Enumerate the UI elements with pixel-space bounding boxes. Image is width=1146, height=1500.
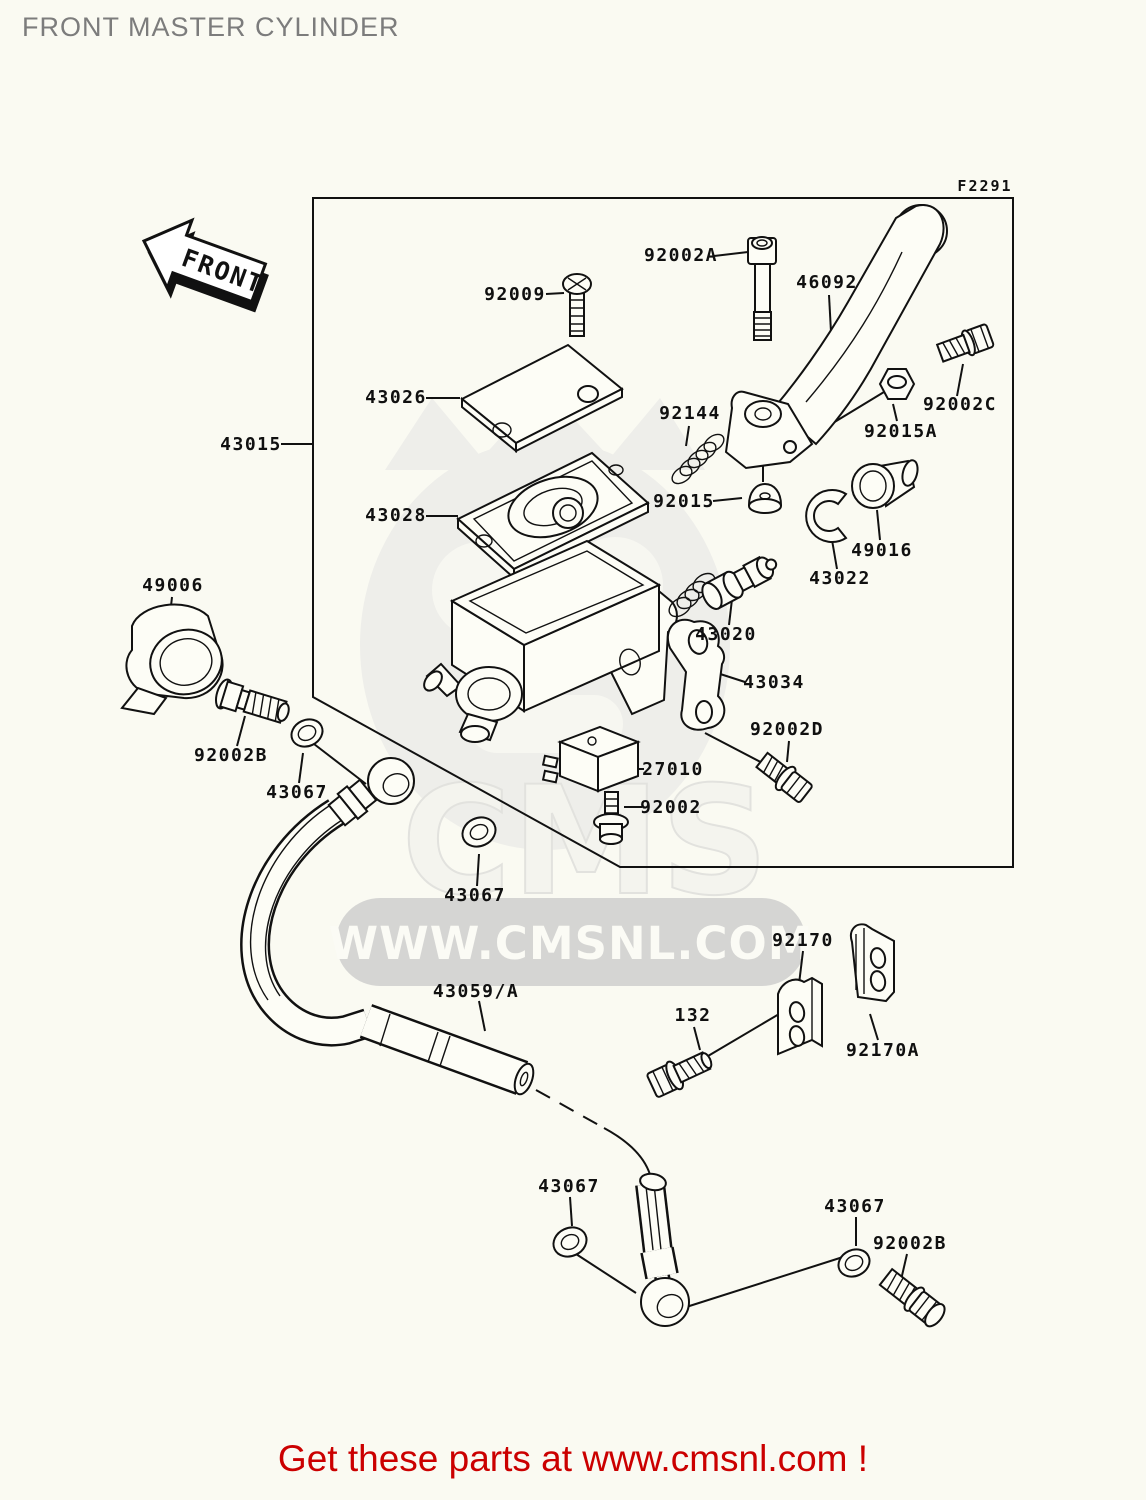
part-label-43067-b[interactable]: 43067	[444, 885, 506, 906]
part-drawing-92170a	[851, 924, 894, 1001]
leader-92002c	[957, 364, 963, 396]
part-drawing-43067-d	[834, 1244, 874, 1281]
figure-code: F2291	[957, 177, 1012, 195]
front-arrow-icon: FRONT	[129, 207, 278, 327]
assembly-43067-c	[576, 1254, 636, 1293]
part-drawing-49016	[852, 459, 920, 508]
assembly-43067-d	[680, 1257, 843, 1309]
leader-92015	[713, 498, 742, 501]
hose-continuation-dashed	[536, 1090, 604, 1128]
parts-diagram: CMS WWW.CMSNL.COM F2291 FRONT	[0, 0, 1146, 1500]
leader-43067-c	[570, 1197, 572, 1226]
part-label-92002b[interactable]: 92002B	[194, 745, 268, 766]
part-label-92009[interactable]: 92009	[484, 284, 546, 305]
part-label-92002[interactable]: 92002	[640, 797, 702, 818]
part-label-43034[interactable]: 43034	[743, 672, 805, 693]
part-label-43059a[interactable]: 43059/A	[433, 981, 519, 1002]
part-drawing-92002a	[748, 237, 776, 340]
part-label-49006[interactable]: 49006	[142, 575, 204, 596]
part-label-92015[interactable]: 92015	[653, 491, 715, 512]
part-drawing-92170	[778, 978, 822, 1054]
part-drawing-92002b-b	[877, 1266, 949, 1331]
assembly-43067-a	[314, 744, 366, 784]
leader-43059	[479, 1001, 485, 1031]
leader-46092	[829, 295, 831, 332]
part-label-92170[interactable]: 92170	[772, 930, 834, 951]
part-drawing-43067-a	[287, 714, 327, 751]
part-drawing-43067-c	[549, 1222, 592, 1262]
leader-43022	[832, 540, 837, 569]
cmsnl-url-watermark-text: WWW.CMSNL.COM	[328, 917, 813, 970]
part-label-43015[interactable]: 43015	[220, 434, 282, 455]
parts-catalog-page: FRONT MASTER CYLINDER CMS WWW.CMSNL.COM …	[0, 0, 1146, 1500]
part-label-92002c[interactable]: 92002C	[923, 394, 997, 415]
part-drawing-43026	[462, 345, 622, 451]
leader-92009	[546, 293, 564, 294]
part-label-92002b-b[interactable]: 92002B	[873, 1233, 947, 1254]
leader-132	[694, 1027, 700, 1050]
part-drawing-49006	[122, 605, 229, 714]
part-drawing-132	[646, 1045, 717, 1099]
part-label-46092[interactable]: 46092	[796, 272, 858, 293]
part-label-43020[interactable]: 43020	[695, 624, 757, 645]
leader-92002a	[714, 252, 748, 256]
part-label-92015a[interactable]: 92015A	[864, 421, 938, 442]
part-drawing-92009	[563, 274, 591, 336]
part-label-43022[interactable]: 43022	[809, 568, 871, 589]
part-label-43067-c[interactable]: 43067	[538, 1176, 600, 1197]
part-label-43067-d[interactable]: 43067	[824, 1196, 886, 1217]
cmsnl-url-watermark: WWW.CMSNL.COM	[328, 898, 813, 986]
part-label-92002d[interactable]: 92002D	[750, 719, 824, 740]
part-drawing-92015a	[880, 369, 914, 399]
part-label-27010[interactable]: 27010	[642, 759, 704, 780]
part-label-132[interactable]: 132	[674, 1005, 711, 1026]
part-drawing-92002c	[936, 323, 995, 366]
part-label-43026[interactable]: 43026	[365, 387, 427, 408]
part-drawing-92002b	[213, 678, 293, 728]
part-label-43067-a[interactable]: 43067	[266, 782, 328, 803]
leader-92170a	[870, 1014, 878, 1040]
part-label-92002a[interactable]: 92002A	[644, 245, 718, 266]
part-drawing-92015	[749, 484, 781, 513]
part-label-92144[interactable]: 92144	[659, 403, 721, 424]
leader-43067-a	[299, 753, 303, 783]
leader-92002b	[237, 716, 245, 746]
footer-promo-link[interactable]: Get these parts at www.cmsnl.com !	[0, 1438, 1146, 1480]
leader-92002d	[787, 741, 789, 762]
part-label-43028[interactable]: 43028	[365, 505, 427, 526]
leader-49016	[877, 510, 880, 540]
part-label-49016[interactable]: 49016	[851, 540, 913, 561]
part-label-92170a[interactable]: 92170A	[846, 1040, 920, 1061]
leader-92015a	[893, 404, 897, 421]
part-drawing-43022	[806, 490, 846, 542]
